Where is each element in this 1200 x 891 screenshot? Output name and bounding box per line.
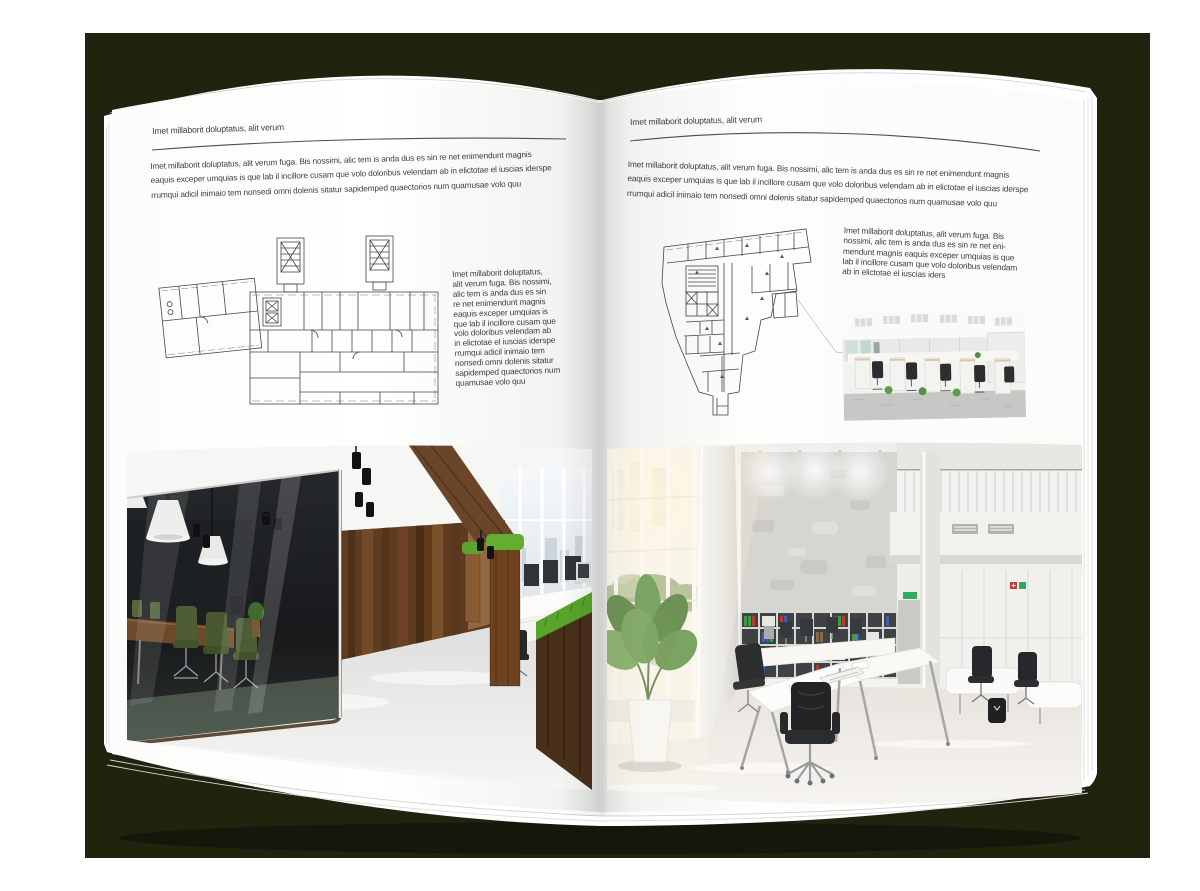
left-page-side-column: Imet millaborit doluptatus, alit verum f… [452, 266, 591, 389]
right-page-side-column: Imet millaborit doluptatus, alit verum f… [842, 225, 1059, 285]
magazine-spread-mockup: Imet millaborit doluptatus, alit verum I… [0, 0, 1200, 891]
book-shadow [120, 822, 1080, 854]
right-photo-small-cubicles [842, 309, 1026, 421]
left-photo-loft-office [121, 440, 597, 800]
spine-crease [562, 94, 642, 816]
